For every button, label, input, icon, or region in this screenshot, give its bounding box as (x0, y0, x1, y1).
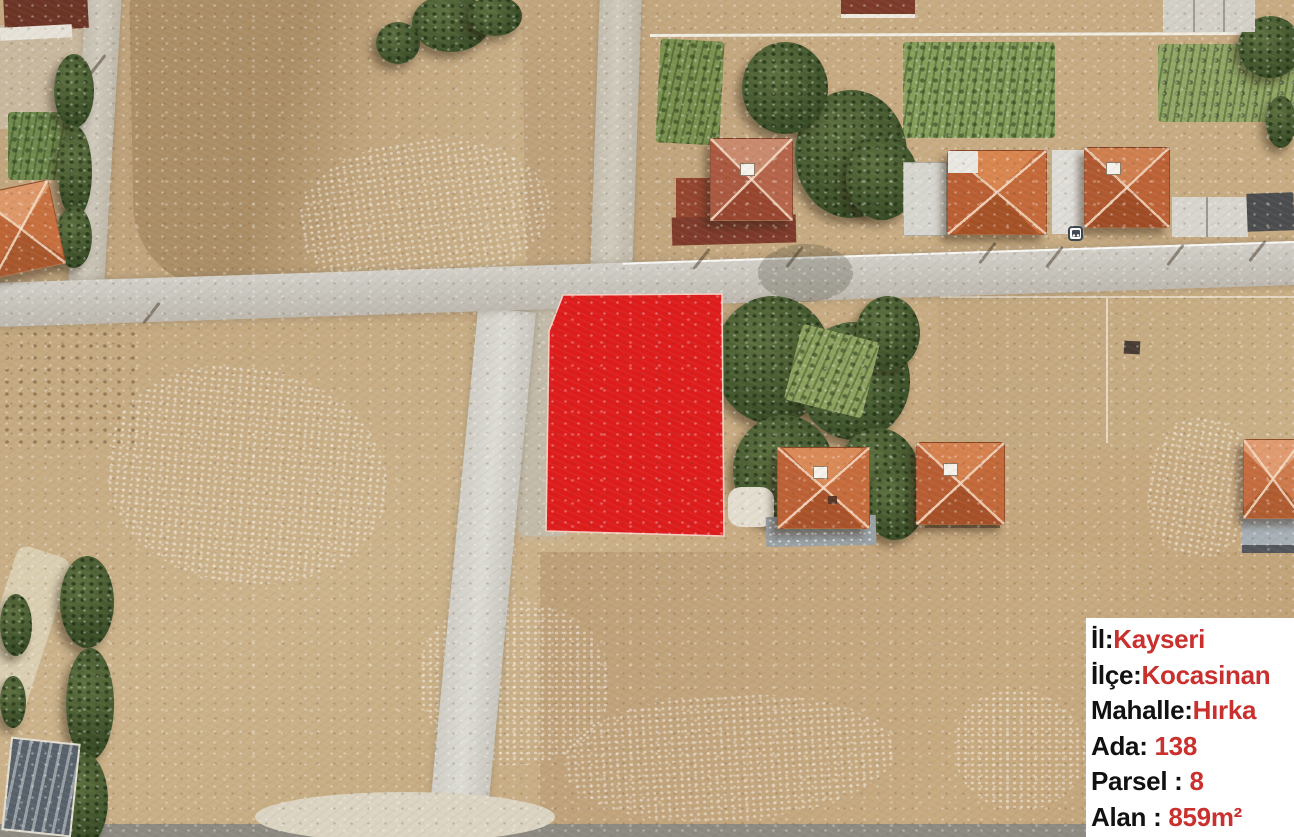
info-label: Mahalle: (1091, 695, 1193, 725)
info-row-parsel: Parsel : 8 (1091, 764, 1294, 800)
info-row-alan: Alan : 859m² (1091, 800, 1294, 836)
info-value: 859m² (1168, 802, 1242, 832)
bus-stop-icon (1068, 226, 1083, 241)
info-value: 138 (1155, 731, 1197, 761)
info-row-ada: Ada: 138 (1091, 729, 1294, 765)
info-value: Kayseri (1113, 624, 1205, 654)
info-label: Ada: (1091, 731, 1155, 761)
info-row-ilce: İlçe:Kocasinan (1091, 658, 1294, 694)
info-row-il: İl:Kayseri (1091, 622, 1294, 658)
info-label: Parsel : (1091, 766, 1189, 796)
satellite-map: İl:Kayseri İlçe:Kocasinan Mahalle:Hırka … (0, 0, 1294, 837)
bus-glyph (1072, 230, 1080, 237)
info-value: Hırka (1193, 695, 1257, 725)
info-label: İl: (1091, 624, 1113, 654)
info-row-mahalle: Mahalle:Hırka (1091, 693, 1294, 729)
info-label: Alan : (1091, 802, 1168, 832)
info-label: İlçe: (1091, 660, 1142, 690)
parcel-info-box: İl:Kayseri İlçe:Kocasinan Mahalle:Hırka … (1086, 618, 1294, 837)
parcel-polygon (546, 294, 724, 536)
info-value: 8 (1189, 766, 1203, 796)
info-value: Kocasinan (1142, 660, 1271, 690)
